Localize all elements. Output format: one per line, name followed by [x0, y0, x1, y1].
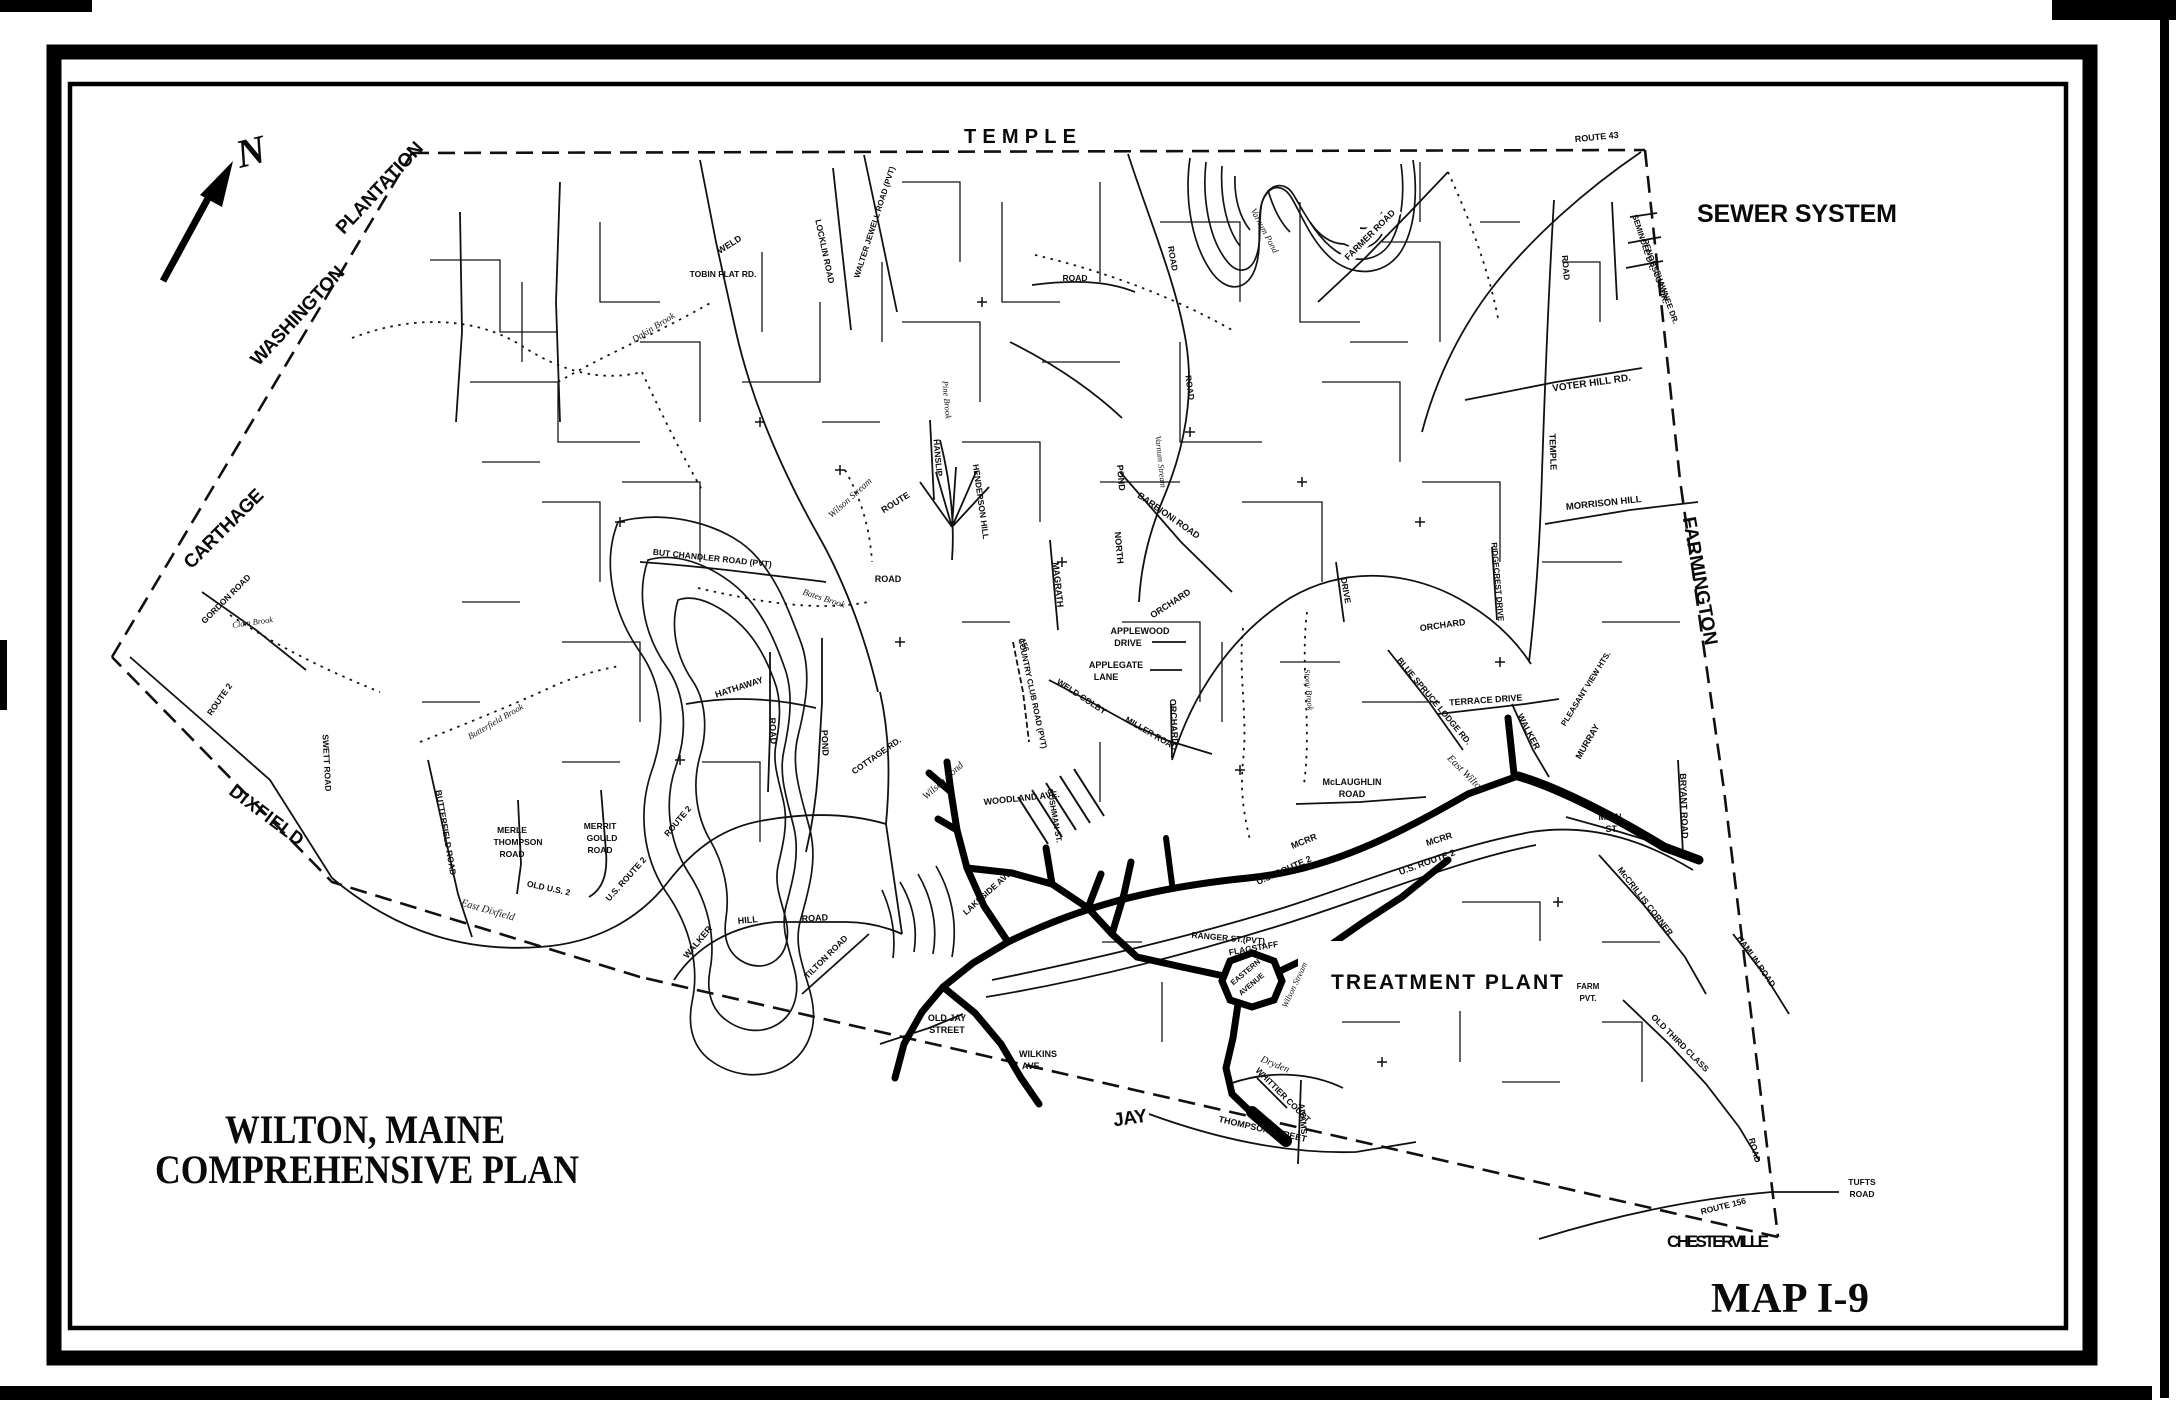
map-label: ORCHARD: [1419, 617, 1466, 633]
map-label: ROUTE 2: [662, 804, 694, 839]
map-label: Dakin Brook: [630, 311, 678, 346]
map-label: POND: [819, 730, 830, 757]
map-label: ROAD: [587, 845, 612, 855]
map-label: ROAD: [801, 912, 828, 923]
map-label: APPLEGATE: [1089, 660, 1143, 670]
map-label: TUFTS: [1848, 1177, 1876, 1187]
map-label: ROAD: [499, 849, 524, 859]
map-label: ROUTE 43: [1574, 130, 1619, 145]
map-label: MCRR: [1425, 830, 1454, 848]
map-label: BRYANT ROAD: [1678, 773, 1690, 839]
map-label: APPLEWOOD: [1110, 626, 1170, 636]
map-label: ROAD: [1062, 273, 1087, 283]
map-label: BARBIONI ROAD: [1136, 490, 1202, 541]
map-label: ROAD: [1183, 374, 1196, 400]
town-label: CARTHAGE: [180, 485, 268, 573]
plan-title-line2: COMPREHENSIVE PLAN: [155, 1147, 579, 1192]
map-label: ROAD: [1560, 255, 1572, 281]
map-label: Wilson Pond: [921, 759, 967, 802]
map-label: THOMPSON: [493, 837, 542, 847]
map-label: HAMLIN ROAD: [1735, 934, 1778, 989]
map-label: DRIVE: [1114, 638, 1142, 648]
map-label: ORCHARD: [1148, 586, 1192, 620]
map-label: Wilson Stream: [827, 476, 875, 520]
map-label: TEMPLE: [1547, 433, 1558, 470]
town-label: DIXFIELD: [225, 781, 307, 850]
region-title: SEWER SYSTEM: [1697, 200, 1897, 228]
map-label: OLD JAY: [928, 1013, 966, 1023]
map-label: McLAUGHLIN: [1323, 777, 1382, 787]
treatment-plant-label: TREATMENT PLANT: [1331, 971, 1563, 994]
town-label: FARMINGTON: [1678, 515, 1721, 647]
map-canvas: TREATMENT PLANT SEWER SYSTEM WILTON, MAI…: [0, 0, 2176, 1408]
map-label: McCRILLIS CORNER: [1616, 865, 1676, 937]
map-label: MAIN: [1599, 812, 1622, 822]
north-arrow: N: [163, 126, 272, 281]
map-label: Bates Brook: [802, 587, 848, 610]
town-label: WASHINGTON: [247, 262, 350, 370]
map-label: TOBIN FLAT RD.: [690, 269, 757, 279]
map-label: NORTH: [1113, 531, 1126, 564]
map-label: WELD COLBY: [1055, 677, 1109, 717]
north-arrow-shaft: [163, 191, 212, 281]
map-label: ST.: [1605, 824, 1618, 834]
map-label: HENDERSON HILL: [971, 463, 991, 539]
map-number-label: MAP I-9: [1711, 1276, 1869, 1322]
map-label: STREET: [929, 1025, 965, 1035]
map-label: OLD THIRD CLASS: [1649, 1012, 1711, 1074]
map-label: Stony Brook: [1302, 669, 1316, 711]
map-label: WILKINS: [1019, 1049, 1057, 1059]
map-label: WALKER: [1515, 712, 1542, 752]
map-label: COTTAGE RD.: [850, 735, 903, 776]
map-label: WALTER JEWELL ROAD (PVT): [852, 165, 897, 279]
map-label: ROAD: [1849, 1189, 1874, 1199]
map-label: Butterfield Brook: [466, 701, 526, 741]
map-label: AVE.: [1022, 1061, 1042, 1071]
map-label: ROAD: [1166, 245, 1180, 271]
town-label: PLANTATION: [332, 138, 428, 239]
road-labels: ROUTE 43SEMINOLE DR.PENOBSCOT DR.SHAWNEE…: [199, 130, 1876, 1217]
map-label: Varnum Stream: [1153, 435, 1168, 488]
map-label: ROAD: [875, 574, 902, 584]
map-label: MCRR: [1289, 831, 1318, 851]
map-label: HILL: [737, 914, 758, 926]
scanned-map-page: TREATMENT PLANT SEWER SYSTEM WILTON, MAI…: [0, 0, 2176, 1408]
map-label: COUNTRY CLUB ROAD (PVT): [1016, 638, 1048, 750]
map-label: ROAD: [1747, 1137, 1763, 1164]
map-label: Pine Brook: [940, 379, 953, 419]
map-label: East Wilton: [1444, 752, 1487, 795]
map-label: ROAD: [1339, 789, 1366, 799]
map-label: RIDGECREST DRIVE: [1490, 542, 1506, 622]
map-label: ROUTE: [879, 490, 911, 515]
town-label: JAY: [1112, 1106, 1149, 1132]
north-label: N: [230, 126, 272, 177]
map-label: MERLE: [497, 825, 527, 835]
map-label: MURRAY: [1573, 722, 1601, 760]
treatment-plant-callout: TREATMENT PLANT: [1298, 941, 1598, 1011]
map-label: Varnum Pond: [1249, 207, 1281, 256]
map-label: OLD U.S. 2: [526, 879, 571, 898]
town-label: CHESTERVILLE: [1667, 1232, 1769, 1251]
map-label: WELD: [716, 233, 744, 256]
map-label: SWETT ROAD: [321, 734, 334, 792]
map-label: GOULD: [587, 833, 618, 843]
map-label: MERRIT: [584, 821, 617, 831]
map-label: BUT CHANDLER ROAD (PVT): [652, 547, 772, 569]
map-label: HATHAWAY: [714, 675, 765, 700]
map-label: FARM: [1577, 982, 1600, 991]
plan-title-line1: WILTON, MAINE: [225, 1107, 505, 1152]
town-label: TEMPLE: [964, 126, 1076, 148]
map-label: LANE: [1094, 672, 1119, 682]
map-label: PLEASANT VIEW HTS.: [1559, 650, 1612, 728]
map-label: LOCKLIN ROAD: [813, 218, 836, 284]
map-label: ROUTE 156: [1700, 1196, 1748, 1217]
map-label: PVT.: [1580, 994, 1597, 1003]
map-label: POND: [1115, 464, 1127, 491]
map-label: U.S. ROUTE 2: [603, 855, 648, 903]
map-label: MAGRATH: [1051, 562, 1066, 608]
map-label: SHAWNEE DR.: [1652, 269, 1680, 325]
map-label: ROUTE 2: [205, 681, 234, 717]
map-label: BUTTERFIELD ROAD: [434, 789, 459, 876]
map-label: East Dixfield: [459, 897, 517, 923]
map-label: ROAD: [767, 717, 778, 744]
sewer-lines: [895, 718, 1699, 1141]
streams: [230, 172, 1498, 840]
town-boundary: [112, 150, 1778, 1237]
